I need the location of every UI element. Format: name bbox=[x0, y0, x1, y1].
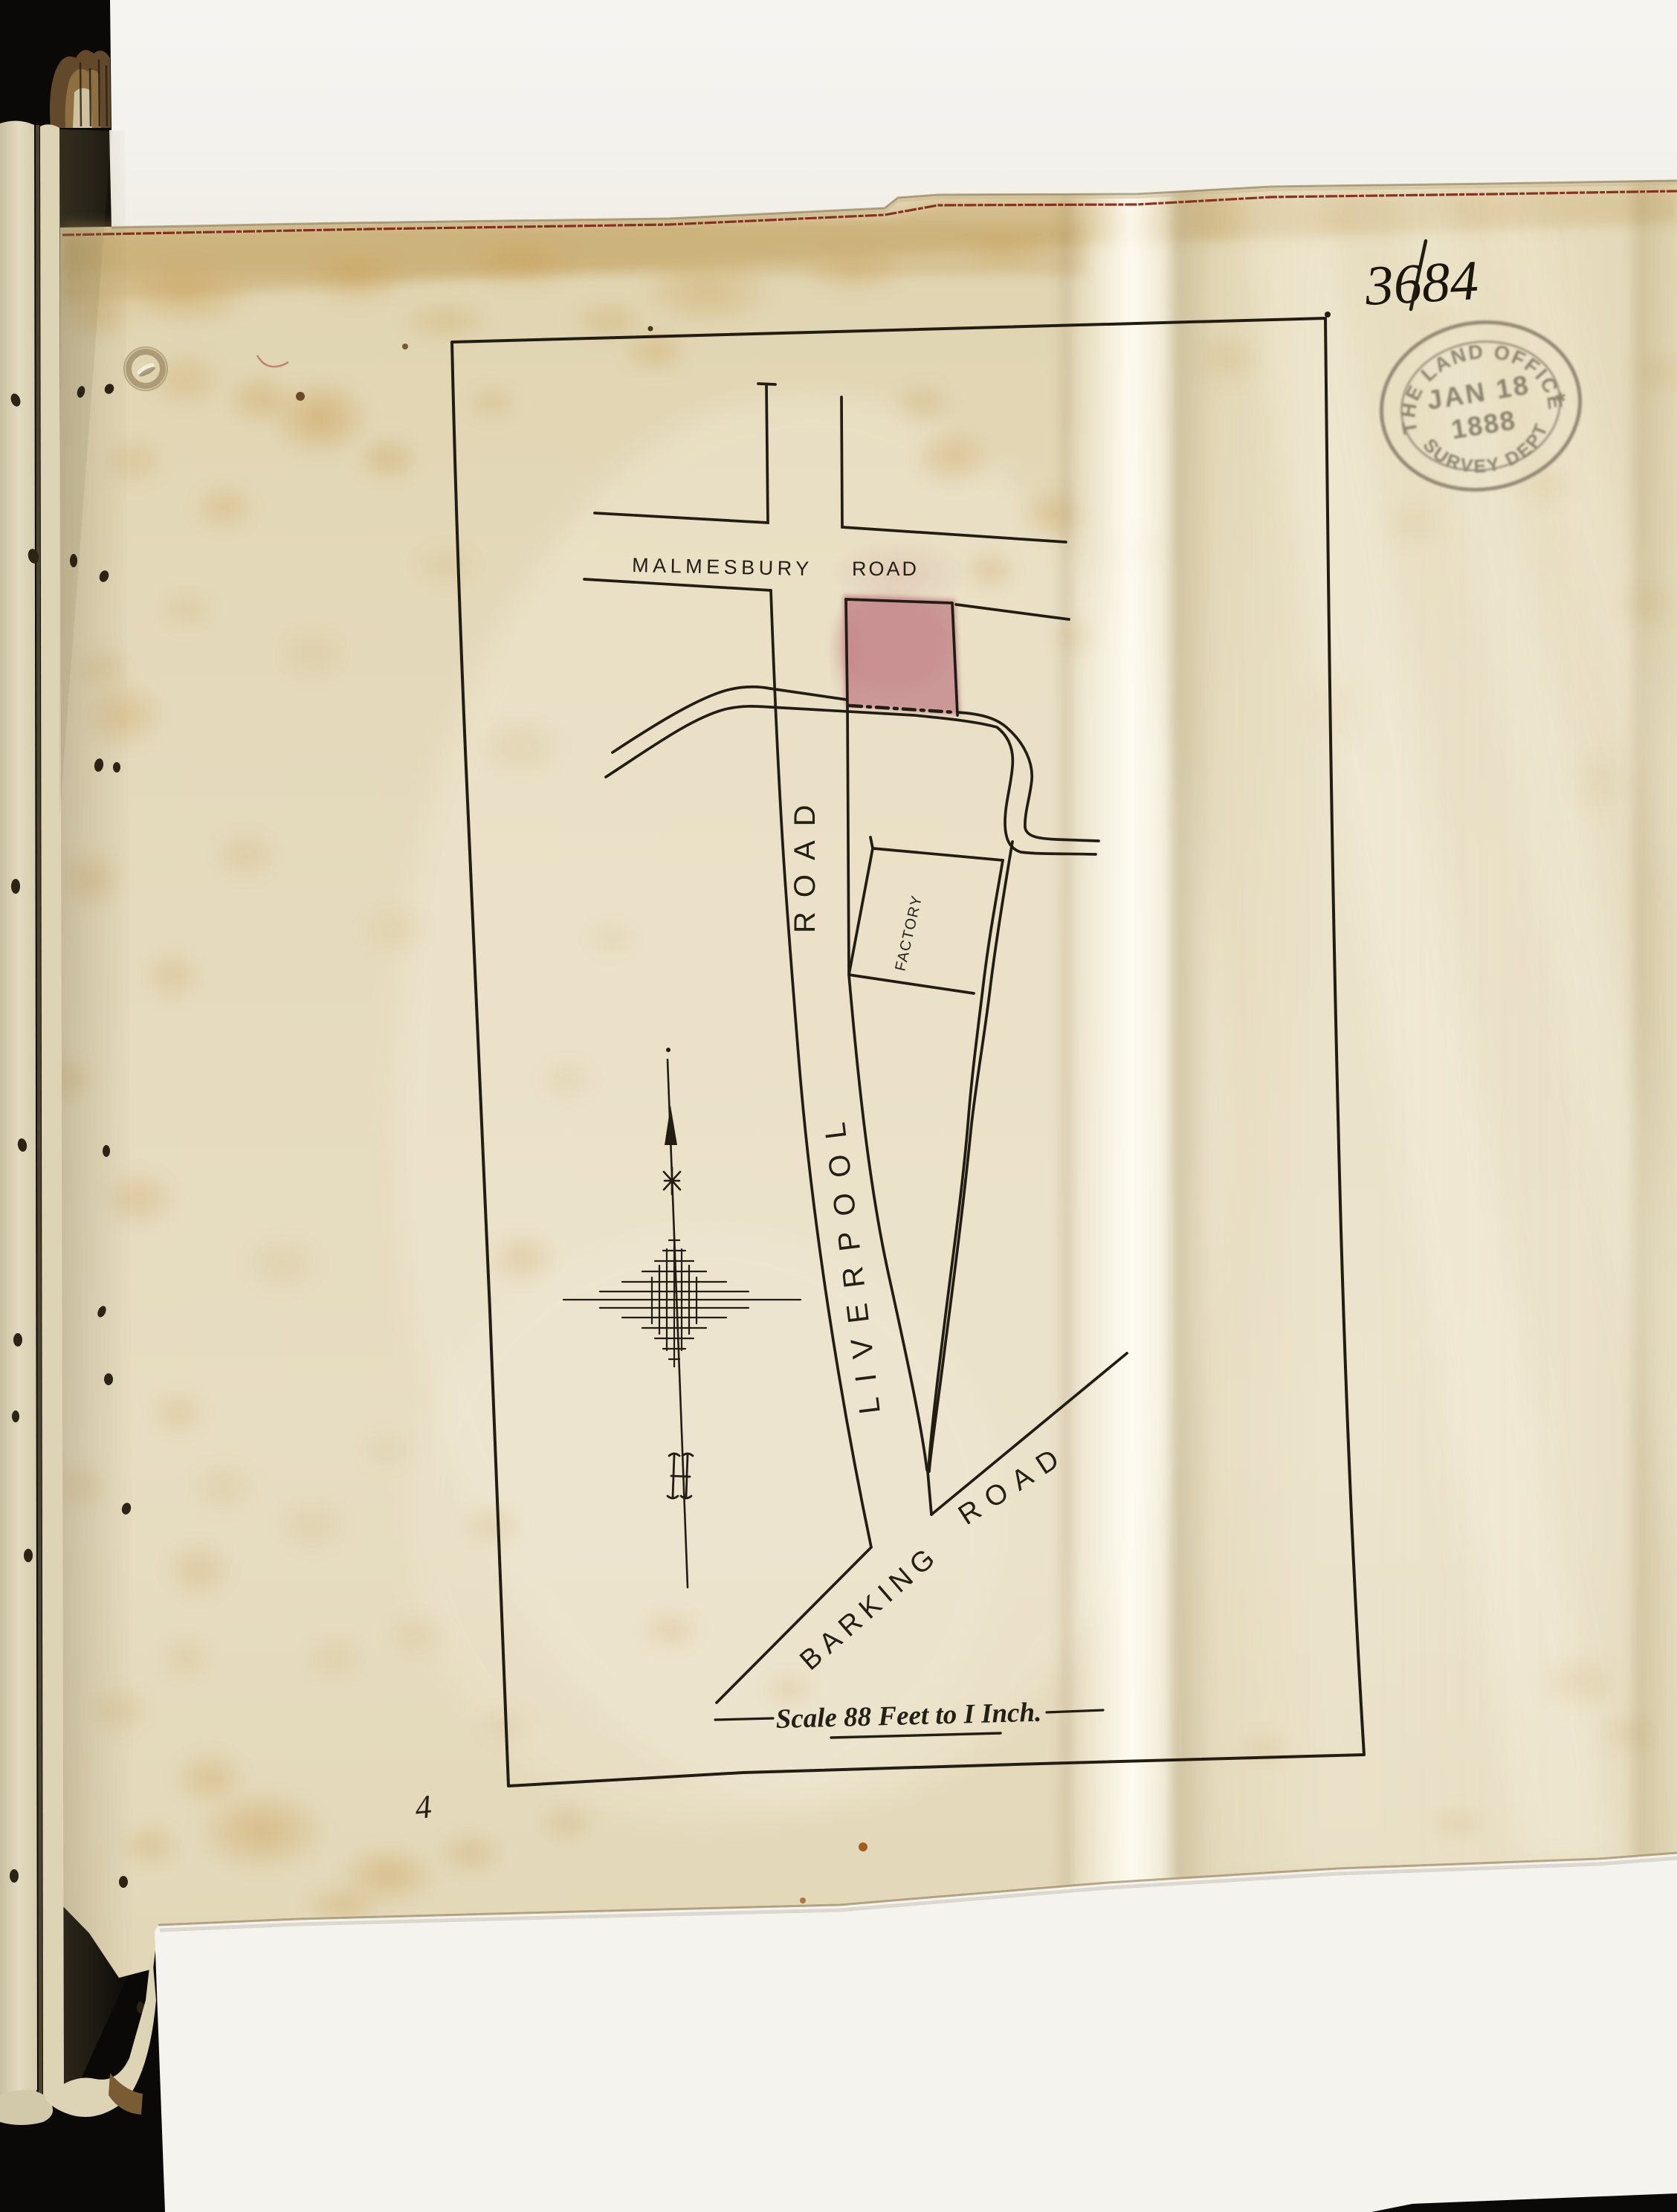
svg-text:ROAD: ROAD bbox=[789, 790, 821, 933]
svg-text:MALMESBURY: MALMESBURY bbox=[632, 554, 813, 580]
svg-text:ROAD: ROAD bbox=[852, 558, 919, 580]
